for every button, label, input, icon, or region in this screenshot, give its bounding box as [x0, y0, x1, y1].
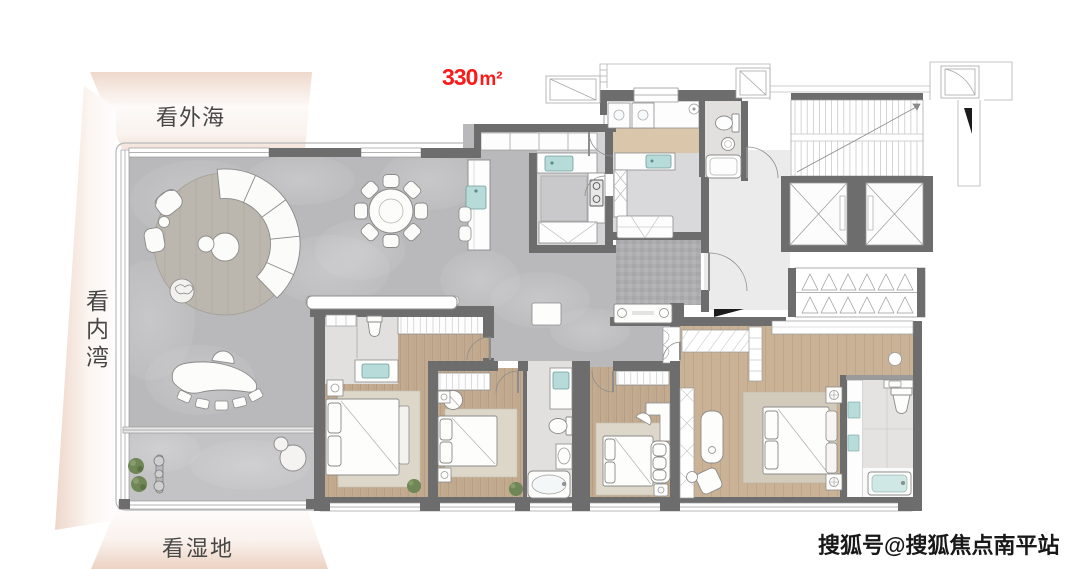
- svg-text:看湿地: 看湿地: [162, 536, 234, 561]
- svg-text:看: 看: [86, 288, 109, 314]
- svg-text:搜狐号@搜狐焦点南平站: 搜狐号@搜狐焦点南平站: [818, 533, 1059, 558]
- svg-text:看外海: 看外海: [156, 105, 225, 130]
- svg-text:湾: 湾: [86, 344, 109, 370]
